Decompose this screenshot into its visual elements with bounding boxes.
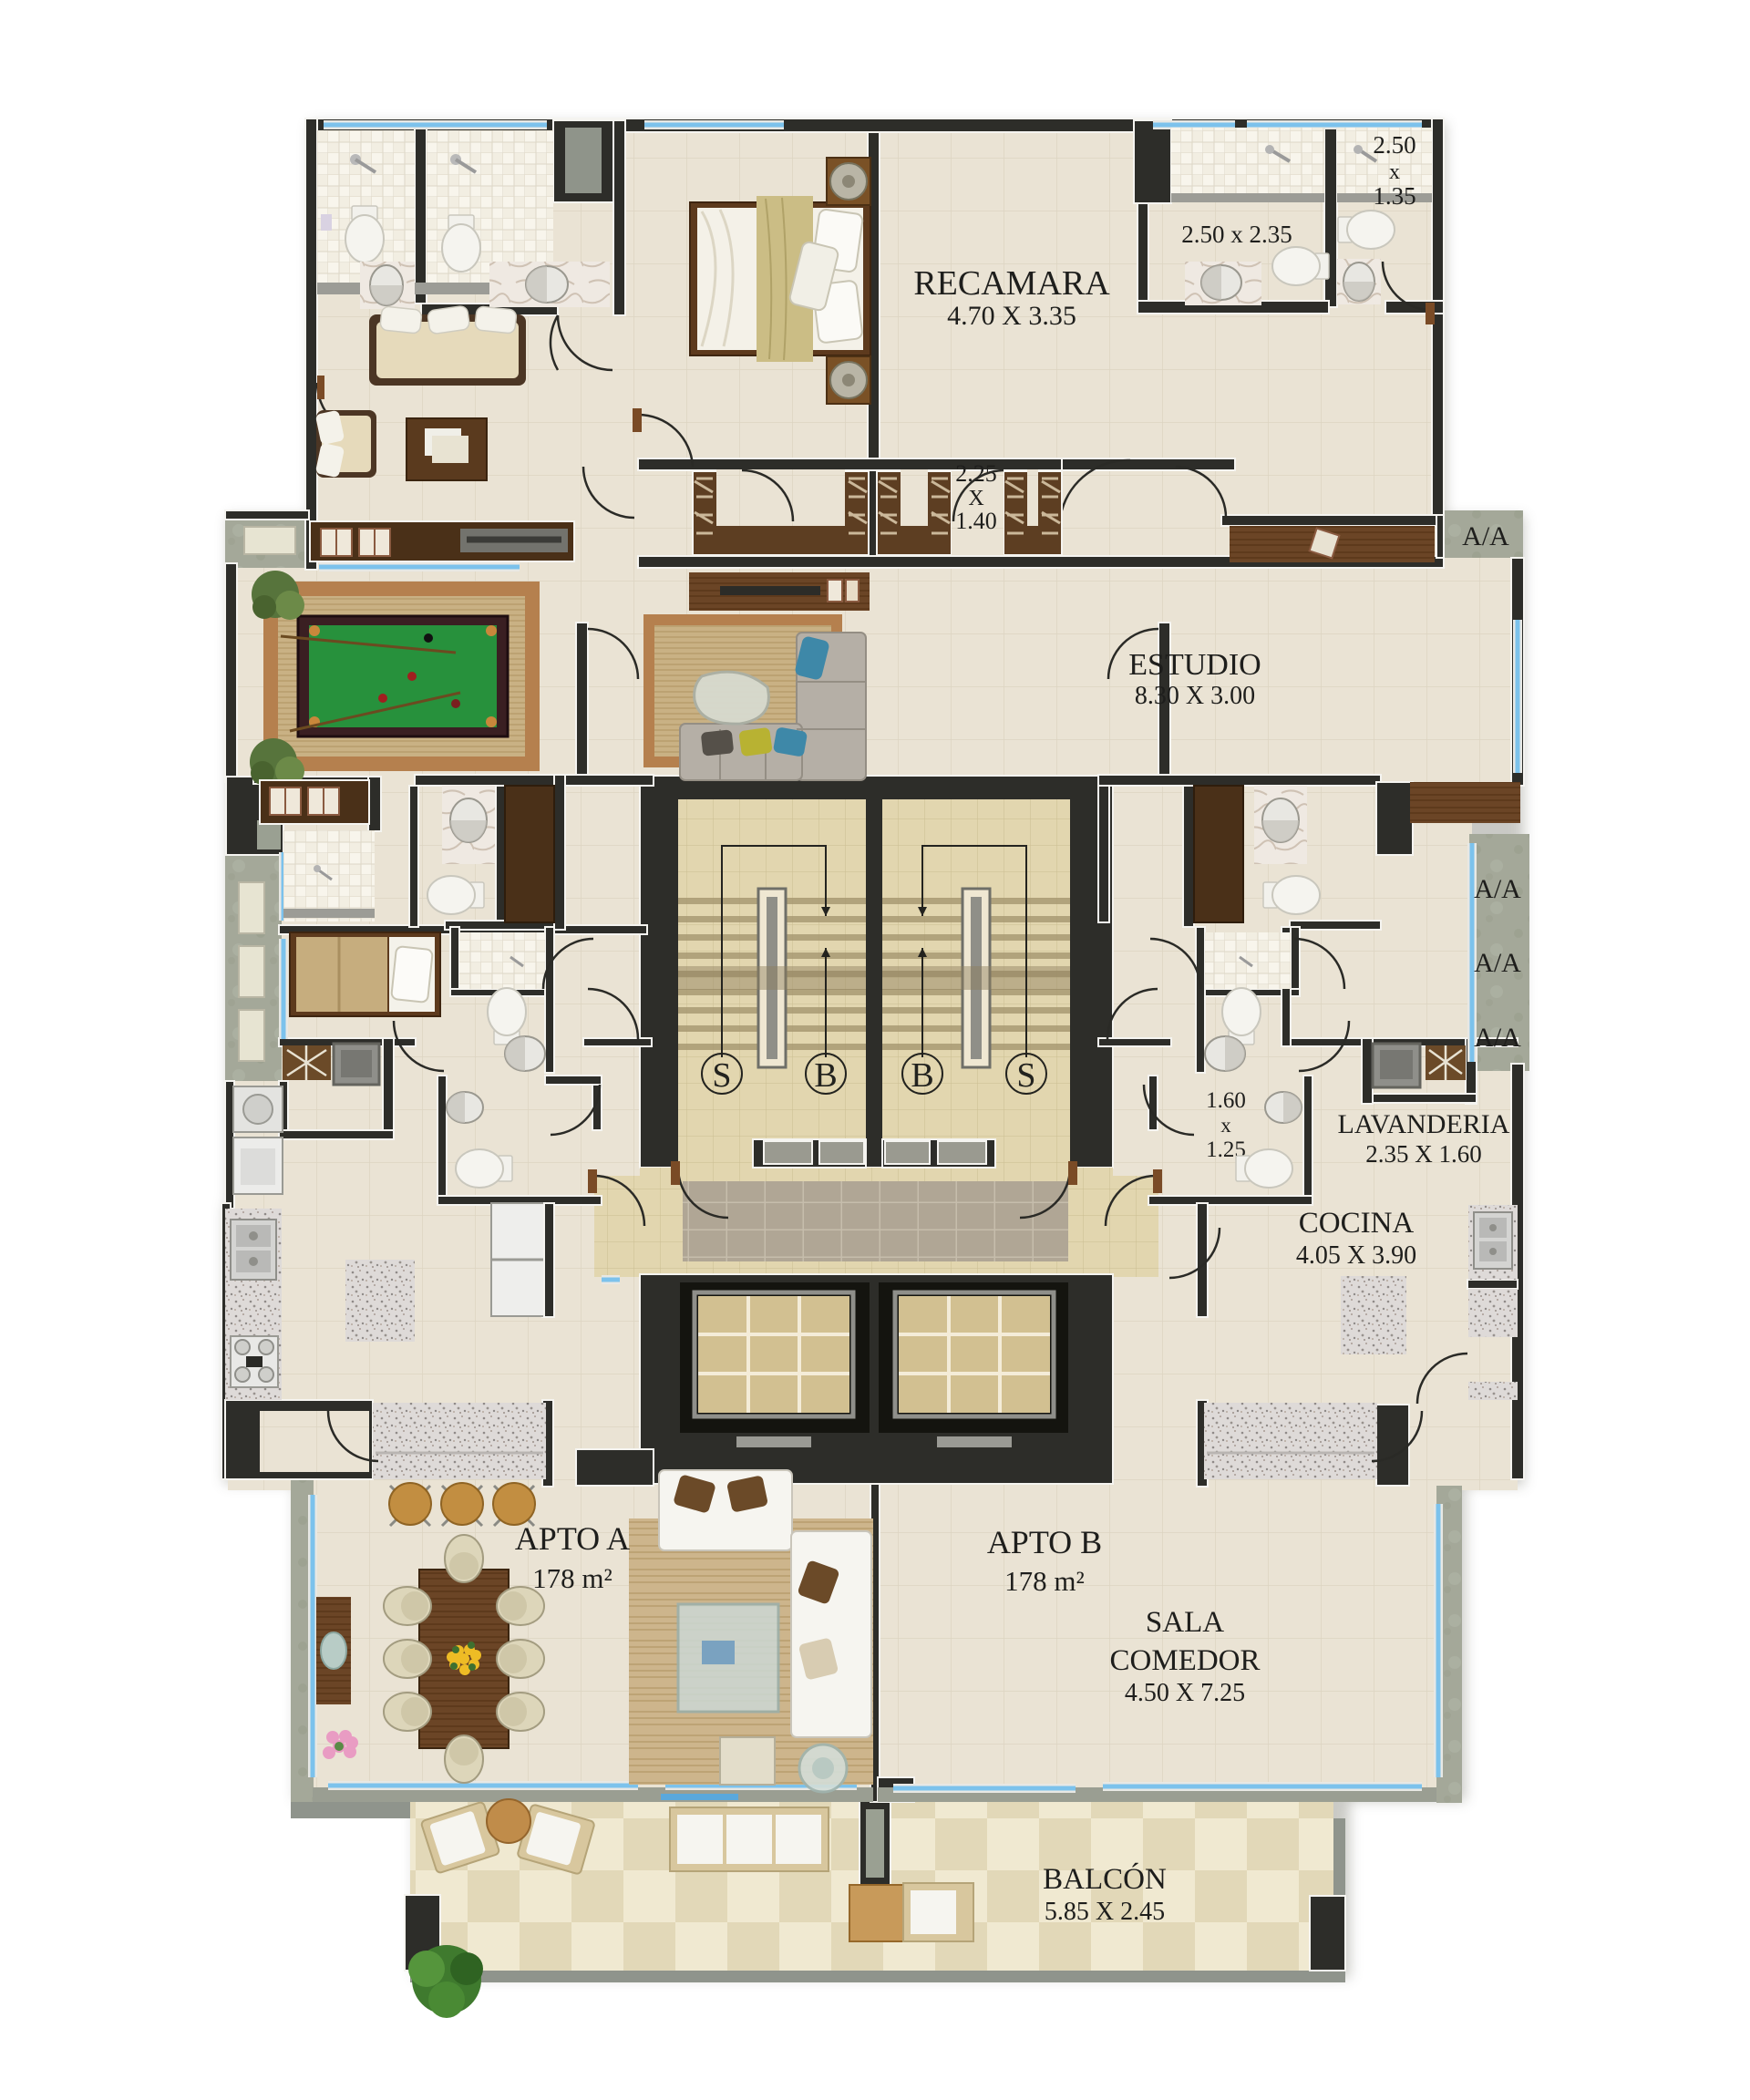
svg-text:A/A: A/A xyxy=(1474,1023,1521,1053)
svg-text:4.05 X 3.90: 4.05 X 3.90 xyxy=(1296,1241,1416,1270)
svg-text:BALCÓN: BALCÓN xyxy=(1043,1861,1167,1896)
svg-text:2.25: 2.25 xyxy=(955,460,997,487)
svg-text:4.50 X 7.25: 4.50 X 7.25 xyxy=(1125,1679,1245,1707)
svg-text:1.60: 1.60 xyxy=(1206,1088,1246,1113)
svg-text:4.70 X 3.35: 4.70 X 3.35 xyxy=(947,301,1076,331)
svg-text:S: S xyxy=(1016,1056,1035,1095)
svg-text:ESTUDIO: ESTUDIO xyxy=(1128,648,1261,682)
svg-text:B: B xyxy=(814,1056,837,1095)
svg-text:SALA: SALA xyxy=(1146,1606,1224,1639)
svg-text:APTO B: APTO B xyxy=(987,1524,1102,1560)
svg-text:2.50 x 2.35: 2.50 x 2.35 xyxy=(1181,221,1292,248)
svg-text:178 m²: 178 m² xyxy=(532,1562,612,1594)
svg-text:x: x xyxy=(1389,160,1400,184)
svg-text:5.85 X 2.45: 5.85 X 2.45 xyxy=(1045,1898,1165,1926)
svg-text:APTO A: APTO A xyxy=(515,1520,630,1557)
svg-text:COCINA: COCINA xyxy=(1299,1207,1415,1240)
svg-text:LAVANDERIA: LAVANDERIA xyxy=(1338,1109,1510,1139)
svg-text:2.50: 2.50 xyxy=(1373,131,1415,159)
svg-text:1.35: 1.35 xyxy=(1373,182,1415,210)
svg-text:B: B xyxy=(911,1056,933,1095)
svg-text:x: x xyxy=(1220,1114,1231,1137)
svg-text:8.30 X 3.00: 8.30 X 3.00 xyxy=(1135,682,1255,710)
svg-text:COMEDOR: COMEDOR xyxy=(1109,1644,1260,1677)
svg-text:A/A: A/A xyxy=(1474,948,1521,978)
svg-text:RECAMARA: RECAMARA xyxy=(913,264,1110,303)
svg-text:178 m²: 178 m² xyxy=(1004,1565,1085,1597)
svg-text:1.40: 1.40 xyxy=(955,508,997,534)
svg-text:A/A: A/A xyxy=(1474,874,1521,904)
svg-text:S: S xyxy=(712,1056,731,1095)
svg-text:2.35 X 1.60: 2.35 X 1.60 xyxy=(1365,1140,1482,1168)
svg-text:A/A: A/A xyxy=(1462,521,1509,551)
